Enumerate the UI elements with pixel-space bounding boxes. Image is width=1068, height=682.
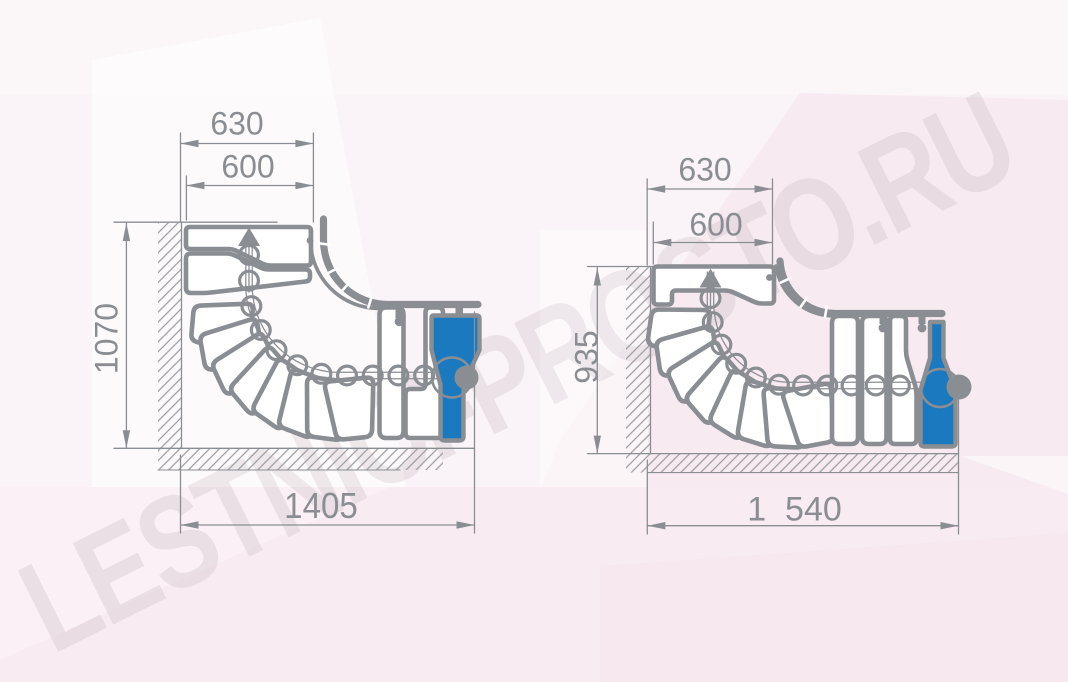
svg-text:600: 600 bbox=[221, 148, 274, 184]
svg-text:1070: 1070 bbox=[88, 303, 124, 374]
svg-text:630: 630 bbox=[210, 105, 263, 141]
svg-text:600: 600 bbox=[689, 206, 742, 242]
svg-text:1 540: 1 540 bbox=[747, 491, 842, 529]
svg-text:935: 935 bbox=[568, 330, 604, 383]
svg-text:630: 630 bbox=[678, 151, 731, 187]
svg-text:1405: 1405 bbox=[284, 487, 358, 527]
